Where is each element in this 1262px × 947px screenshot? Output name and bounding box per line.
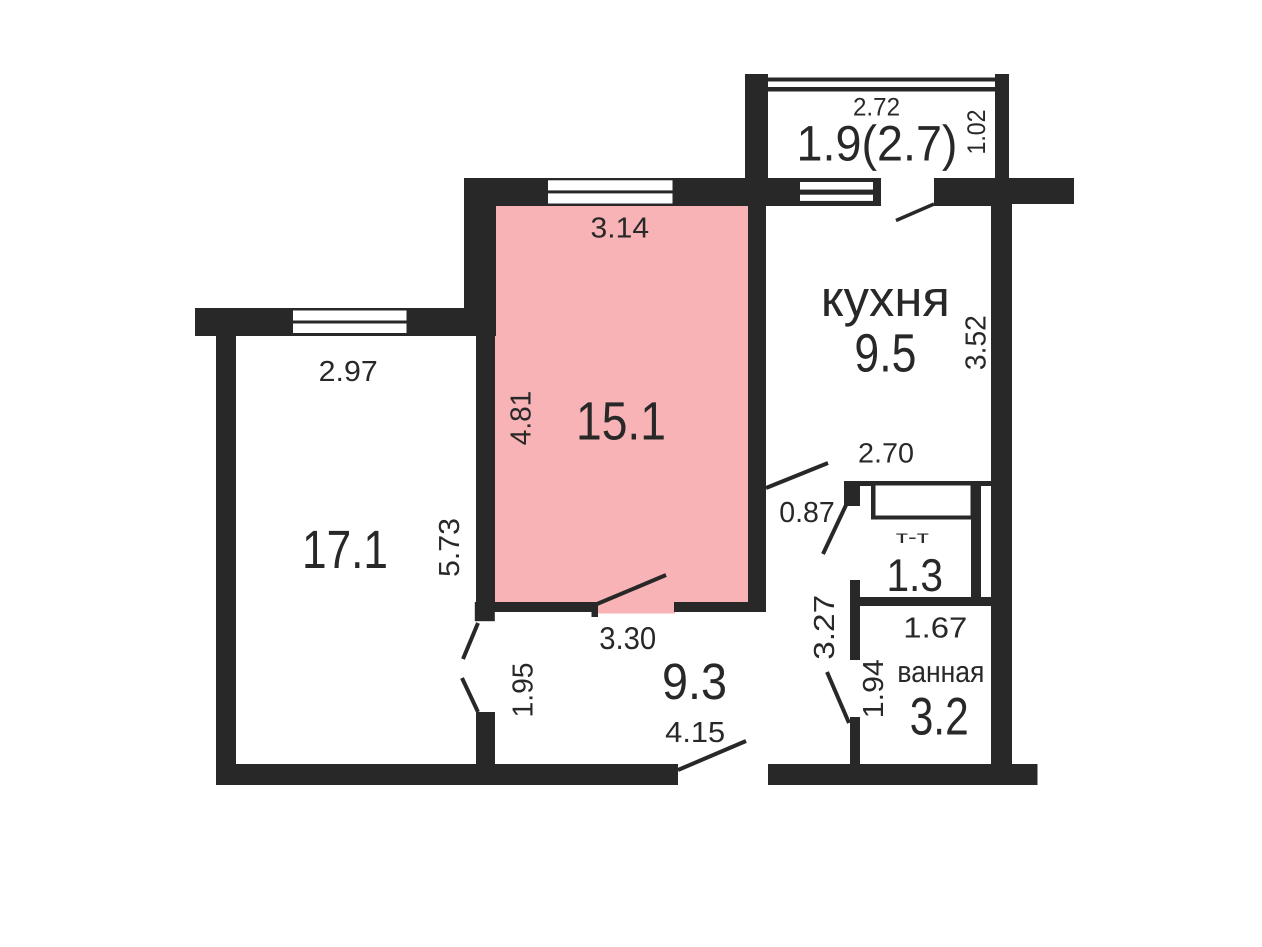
svg-text:3.14: 3.14 xyxy=(591,212,650,244)
svg-text:2.72: 2.72 xyxy=(853,93,900,121)
svg-text:1.94: 1.94 xyxy=(858,659,890,718)
svg-text:2.70: 2.70 xyxy=(858,438,914,469)
svg-text:2.97: 2.97 xyxy=(319,356,378,388)
svg-text:15.1: 15.1 xyxy=(576,391,666,451)
svg-text:1.9(2.7): 1.9(2.7) xyxy=(797,116,958,172)
svg-text:3.30: 3.30 xyxy=(599,620,656,656)
svg-text:3.2: 3.2 xyxy=(910,688,969,747)
svg-text:1.02: 1.02 xyxy=(963,110,991,155)
svg-text:ванная: ванная xyxy=(897,656,984,689)
svg-text:3.27: 3.27 xyxy=(809,595,841,660)
svg-text:1.67: 1.67 xyxy=(903,613,967,645)
svg-text:кухня: кухня xyxy=(821,270,950,327)
svg-text:т-т: т-т xyxy=(896,527,929,547)
svg-text:3.52: 3.52 xyxy=(960,315,992,370)
svg-text:5.73: 5.73 xyxy=(434,518,466,577)
svg-text:4.81: 4.81 xyxy=(506,391,538,446)
svg-text:9.3: 9.3 xyxy=(662,653,727,710)
svg-text:1.95: 1.95 xyxy=(508,663,540,718)
svg-text:4.15: 4.15 xyxy=(665,717,725,749)
svg-text:17.1: 17.1 xyxy=(302,520,388,580)
svg-text:1.3: 1.3 xyxy=(886,549,943,601)
svg-text:0.87: 0.87 xyxy=(779,497,835,529)
svg-text:9.5: 9.5 xyxy=(854,323,916,383)
